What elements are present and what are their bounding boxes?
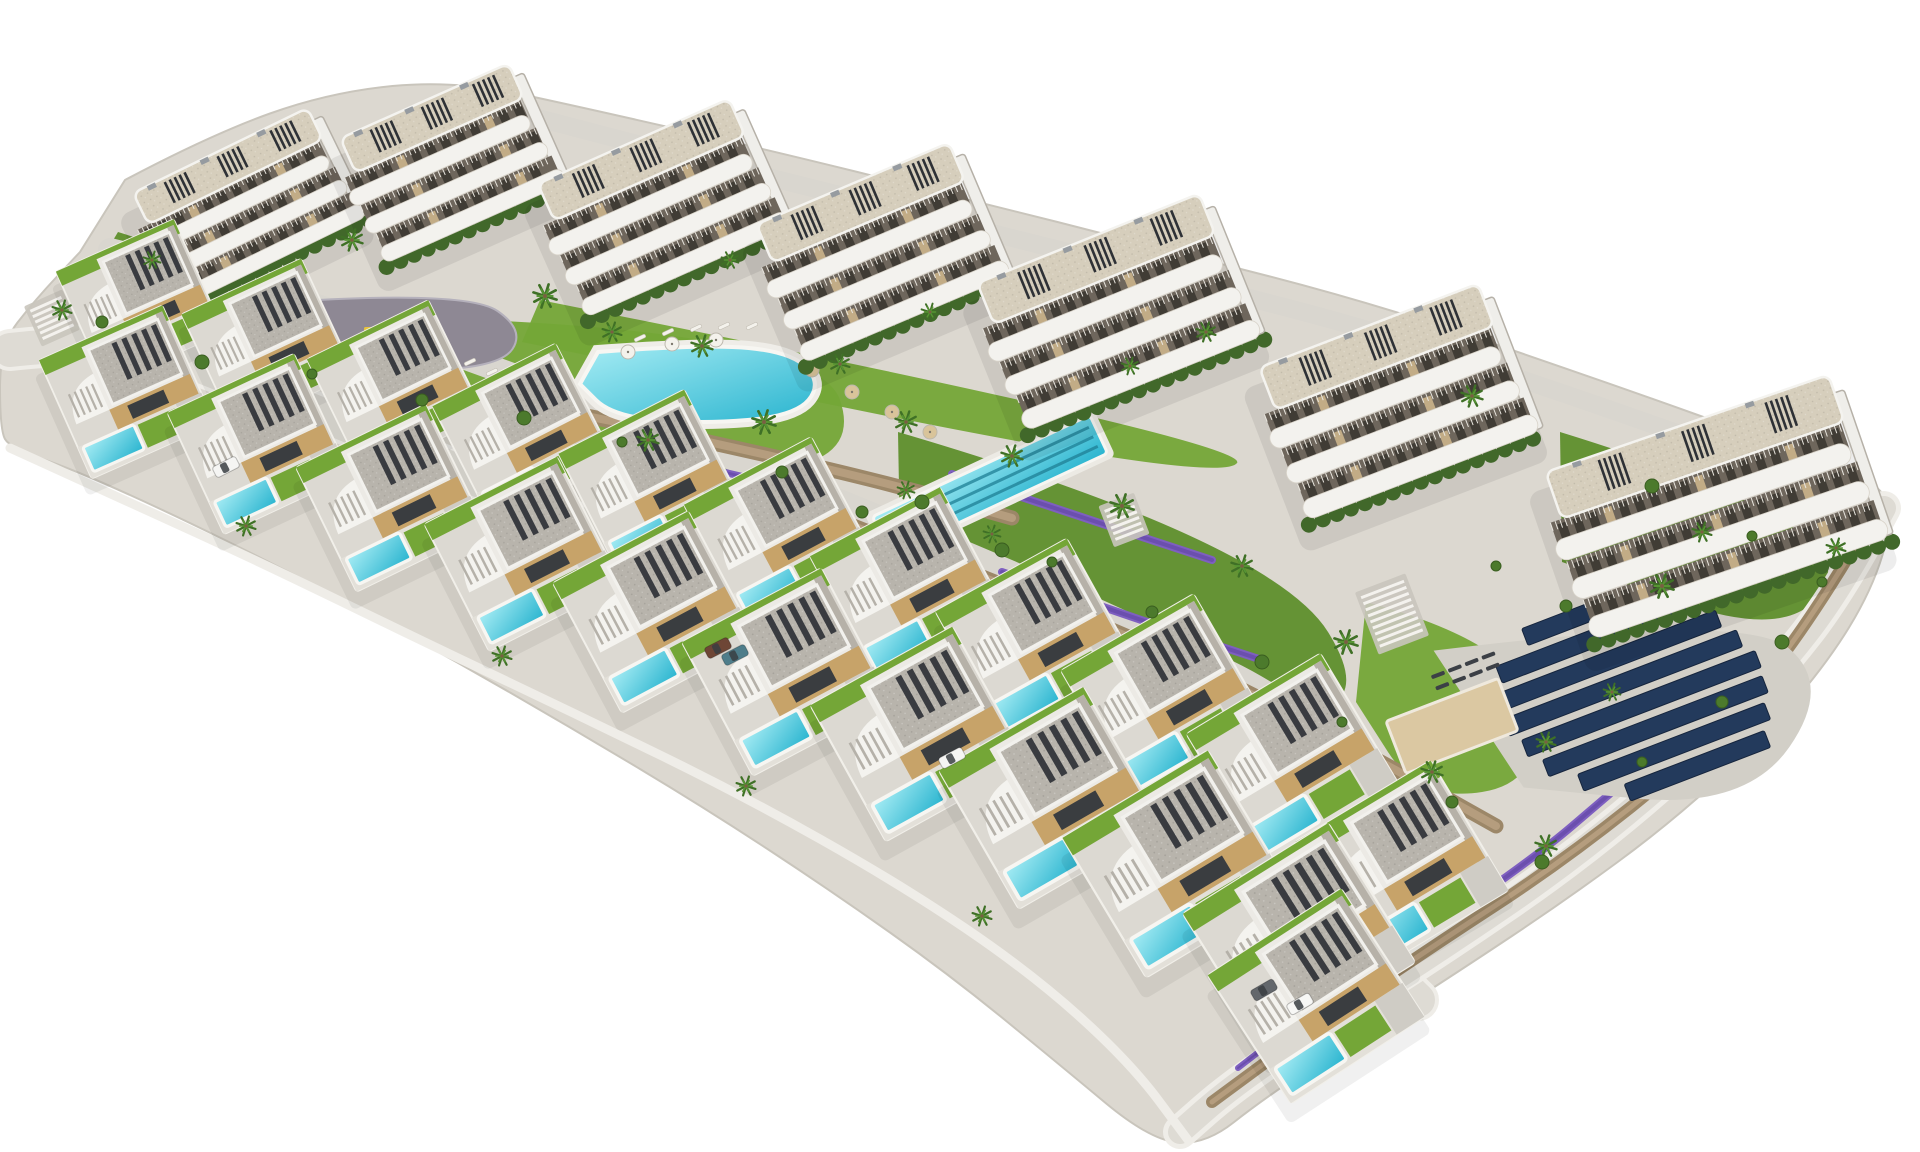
aerial-render-stage bbox=[0, 0, 1920, 1152]
site-plan-render bbox=[0, 0, 1920, 1152]
